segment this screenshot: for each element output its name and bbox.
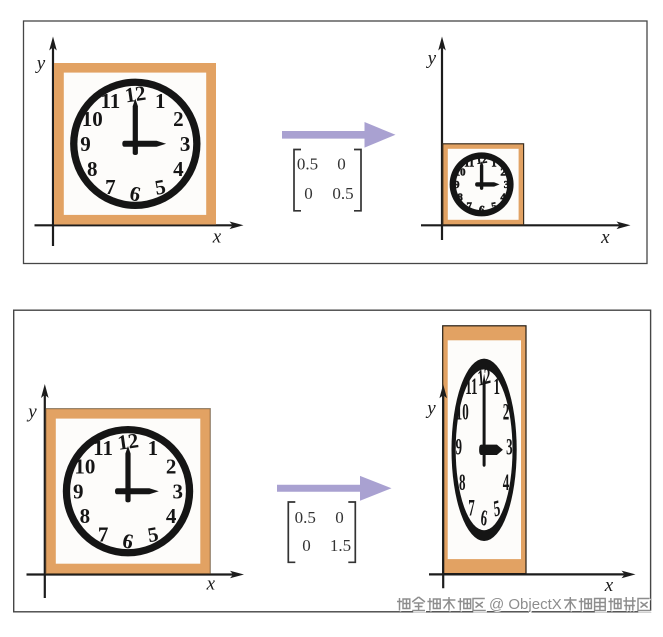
svg-text:9: 9 [454,179,460,191]
svg-text:11: 11 [465,374,477,400]
svg-text:2: 2 [173,107,184,131]
svg-text:x: x [604,575,614,596]
svg-text:8: 8 [459,470,466,496]
svg-text:11: 11 [100,89,120,113]
svg-text:10: 10 [456,400,469,426]
svg-text:2: 2 [503,400,510,426]
svg-text:7: 7 [98,522,109,546]
svg-text:y: y [26,402,37,423]
svg-text:9: 9 [73,479,84,503]
svg-text:x: x [600,227,610,248]
svg-text:x: x [206,574,216,595]
svg-text:0.5: 0.5 [295,508,316,527]
svg-text:y: y [425,398,436,419]
svg-text:1: 1 [148,436,159,460]
svg-text:11: 11 [93,436,113,460]
svg-text:9: 9 [456,435,463,461]
svg-text:1.5: 1.5 [330,536,351,555]
svg-text:7: 7 [466,201,472,213]
svg-text:3: 3 [506,435,513,461]
svg-text:4: 4 [173,157,184,181]
svg-text:11: 11 [464,158,474,170]
svg-text:1: 1 [155,89,166,113]
svg-text:3: 3 [180,132,191,156]
svg-text:0: 0 [335,508,344,527]
svg-text:7: 7 [105,175,116,199]
svg-text:0: 0 [304,184,313,203]
svg-text:8: 8 [457,191,463,203]
svg-text:@ ObjectX: @ ObjectX [489,596,562,613]
svg-text:x: x [212,227,222,248]
svg-text:8: 8 [80,504,91,528]
svg-text:2: 2 [166,454,177,478]
svg-text:y: y [35,53,46,74]
svg-text:2: 2 [500,167,505,179]
svg-text:0.5: 0.5 [297,154,318,173]
svg-text:4: 4 [503,470,510,496]
svg-text:3: 3 [504,179,510,191]
svg-text:3: 3 [173,479,184,503]
svg-text:7: 7 [468,496,475,522]
svg-text:1: 1 [491,158,496,170]
svg-text:1: 1 [494,374,501,400]
svg-text:4: 4 [500,191,506,203]
svg-text:0: 0 [337,154,346,173]
svg-text:8: 8 [87,157,98,181]
svg-text:0: 0 [302,536,311,555]
svg-text:9: 9 [80,132,91,156]
svg-text:0.5: 0.5 [332,184,353,203]
svg-text:4: 4 [166,504,177,528]
svg-text:y: y [426,48,437,69]
